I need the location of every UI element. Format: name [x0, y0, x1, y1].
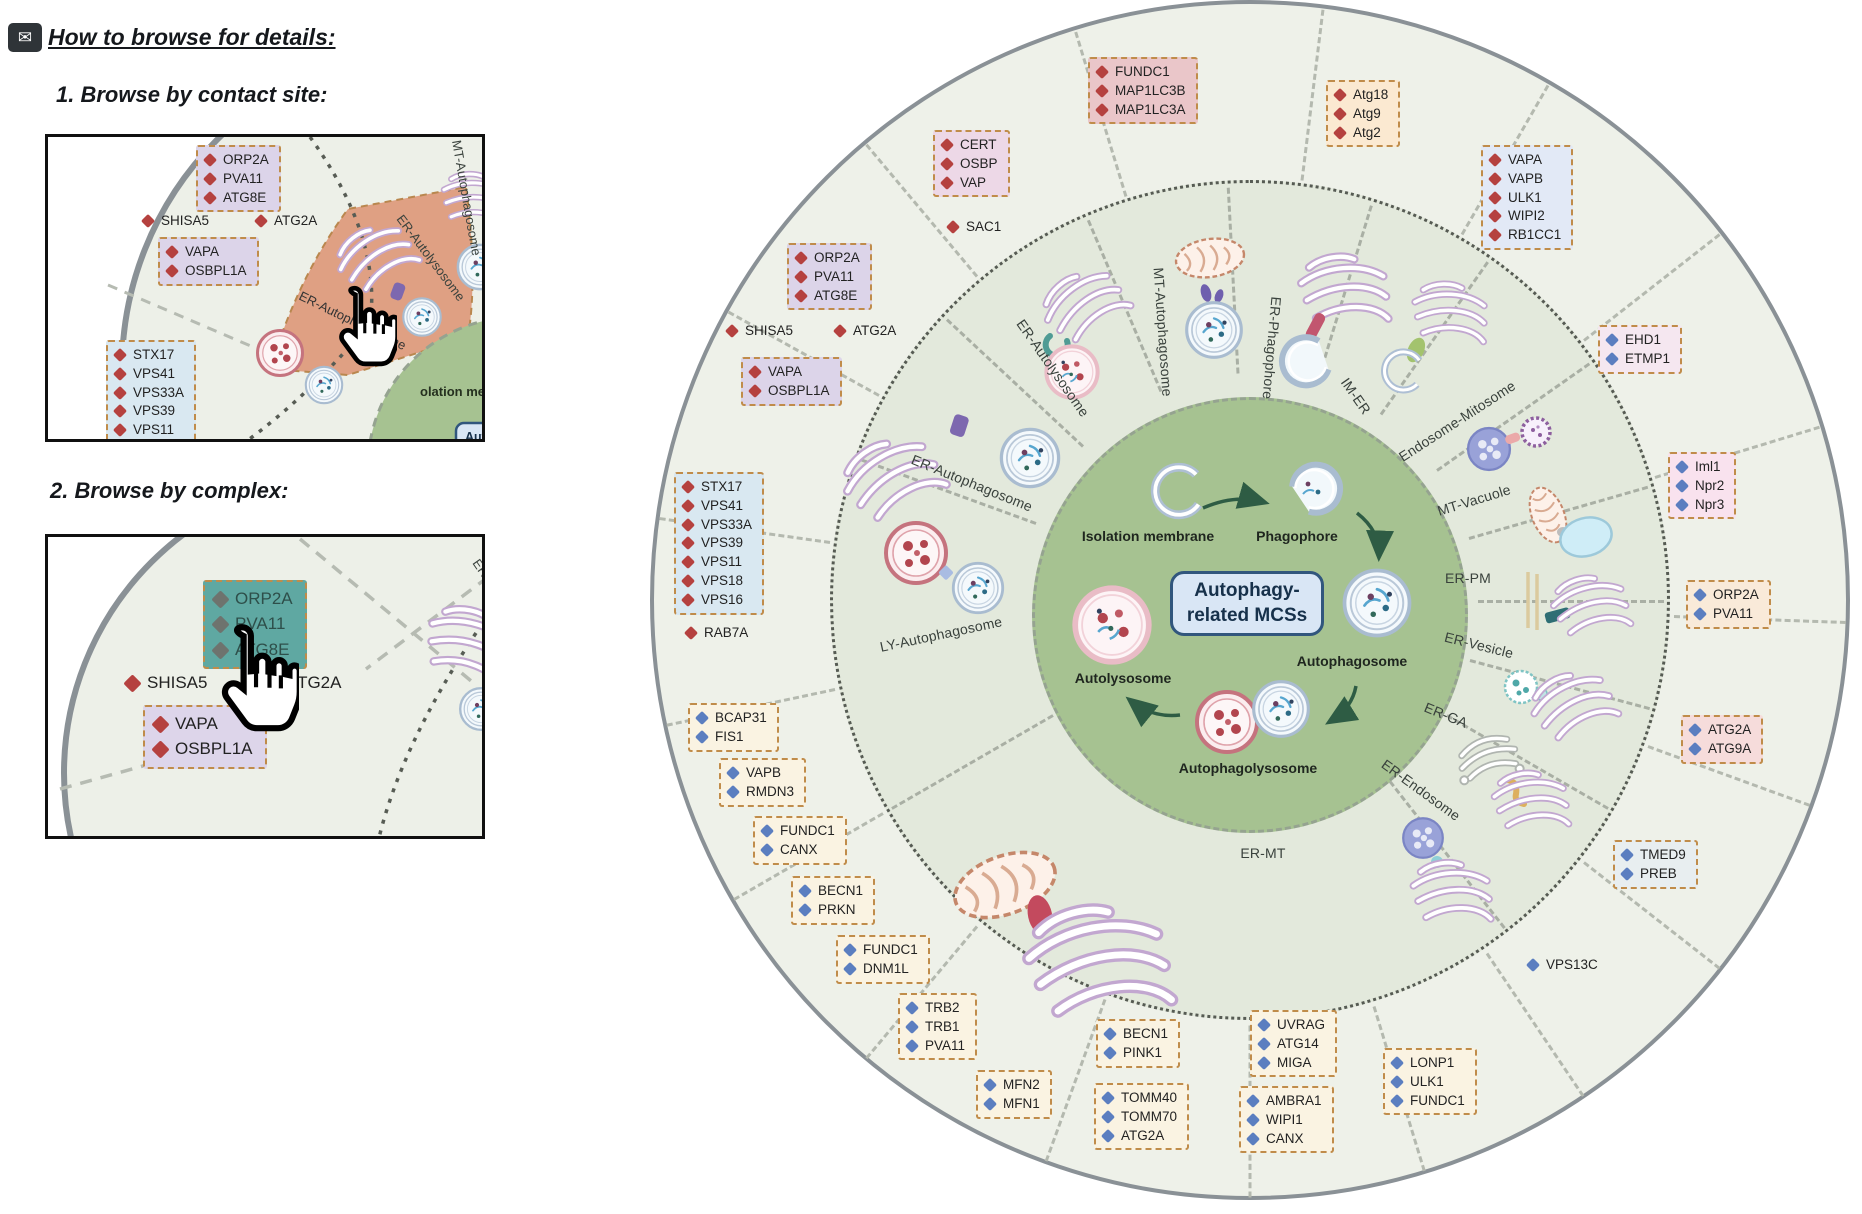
- protein-label: ULK1: [1410, 1073, 1444, 1091]
- protein-label: VPS39: [701, 534, 743, 552]
- diamond-icon: [905, 1038, 919, 1052]
- complex-box-vapb-rmdn3[interactable]: VAPBRMDN3: [719, 758, 806, 807]
- complex-box-fundc1-lc3[interactable]: FUNDC1MAP1LC3BMAP1LC3A: [1088, 57, 1198, 124]
- protein-item[interactable]: CANX: [762, 841, 835, 859]
- protein-item[interactable]: OSBPL1A: [167, 262, 247, 280]
- diamond-icon: [151, 740, 169, 758]
- protein-item[interactable]: ETMP1: [1607, 350, 1670, 368]
- protein-label: ATG9A: [1708, 740, 1751, 758]
- complex-box-becn1-pink1[interactable]: BECN1PINK1: [1096, 1019, 1180, 1068]
- diamond-icon: [1688, 742, 1702, 756]
- complex-box-orp2a[interactable]: ORP2APVA11ATG8E: [196, 145, 281, 212]
- diamond-icon: [211, 590, 229, 608]
- protein-label: MIGA: [1277, 1054, 1312, 1072]
- protein-label: RMDN3: [746, 783, 794, 801]
- protein-item[interactable]: Atg9: [1335, 105, 1388, 123]
- complex-box-mfn[interactable]: MFN2MFN1: [976, 1070, 1052, 1119]
- diamond-icon: [1101, 1091, 1115, 1105]
- protein-label: Atg18: [1353, 86, 1388, 104]
- protein-label: ORP2A: [235, 588, 293, 610]
- protein-label: VPS13C: [1546, 957, 1598, 972]
- protein-item[interactable]: VPS16: [683, 591, 752, 609]
- diamond-icon: [905, 1020, 919, 1034]
- diamond-icon: [760, 824, 774, 838]
- protein-label: VPS33A: [701, 516, 752, 534]
- stage-label-autolysosome: Autolysosome: [1075, 670, 1171, 686]
- complex-box-fundc1-canx[interactable]: FUNDC1CANX: [753, 816, 847, 865]
- protein-item[interactable]: AMBRA1: [1248, 1092, 1322, 1110]
- protein-label: VPS33A: [133, 384, 184, 402]
- protein-item[interactable]: VAPB: [1490, 170, 1561, 188]
- protein-label: LONP1: [1410, 1054, 1454, 1072]
- diamond-icon: [1620, 848, 1634, 862]
- loose-protein-vps13c[interactable]: VPS13C: [1528, 957, 1598, 972]
- protein-item[interactable]: FUNDC1: [1392, 1092, 1465, 1110]
- center-title-badge: Autophagy- related MCSs: [1170, 571, 1324, 636]
- protein-item[interactable]: ULK1: [1392, 1073, 1465, 1091]
- protein-label: VPS16: [701, 591, 743, 609]
- protein-label: WIPI2: [1508, 207, 1545, 225]
- complex-box-atg2a-atg9a[interactable]: ATG2AATG9A: [1681, 715, 1763, 764]
- diamond-icon: [905, 1001, 919, 1015]
- loose-protein-rab7a[interactable]: RAB7A: [686, 625, 748, 640]
- diamond-icon: [1246, 1113, 1260, 1127]
- diamond-icon: [1488, 190, 1502, 204]
- protein-item[interactable]: CERT: [942, 136, 998, 154]
- protein-label: TRB1: [925, 1018, 960, 1036]
- protein-label: TOMM40: [1121, 1089, 1177, 1107]
- loose-protein-atg2a[interactable]: ATG2A: [835, 323, 896, 338]
- protein-label: SHISA5: [745, 323, 793, 338]
- protein-label: FUNDC1: [863, 941, 918, 959]
- protein-label: PREB: [1640, 865, 1677, 883]
- diamond-icon: [1257, 1037, 1271, 1051]
- protein-label: DNM1L: [863, 960, 909, 978]
- protein-item[interactable]: ATG2A: [1690, 721, 1751, 739]
- protein-label: VAPB: [1508, 170, 1543, 188]
- protein-label: VAPA: [185, 243, 219, 261]
- protein-label: Atg9: [1353, 105, 1381, 123]
- diamond-icon: [1390, 1093, 1404, 1107]
- diamond-icon: [940, 138, 954, 152]
- protein-label: ATG8E: [814, 287, 857, 305]
- stage-label-autophagosome: Autophagosome: [1297, 653, 1407, 669]
- protein-item[interactable]: Npr3: [1677, 496, 1724, 514]
- complex-box-vapa[interactable]: VAPAOSBPL1A: [158, 237, 259, 286]
- diamond-icon: [1101, 1128, 1115, 1142]
- protein-label: ATG14: [1277, 1035, 1319, 1053]
- diamond-icon: [760, 843, 774, 857]
- protein-item[interactable]: PVA11: [907, 1037, 965, 1055]
- protein-item[interactable]: MIGA: [1259, 1054, 1325, 1072]
- complex-box-stx17-vps[interactable]: STX17VPS41VPS33AVPS39VPS11VPS18VPS16: [674, 472, 764, 615]
- diamond-icon: [843, 962, 857, 976]
- protein-item[interactable]: ORP2A: [205, 151, 269, 169]
- diamond-icon: [843, 943, 857, 957]
- protein-item[interactable]: OSBP: [942, 155, 998, 173]
- complex-box-becn1-prkn[interactable]: BECN1PRKN: [791, 876, 875, 925]
- loose-protein-atg2a[interactable]: ATG2A: [256, 213, 317, 228]
- protein-item[interactable]: MFN2: [985, 1076, 1040, 1094]
- protein-item[interactable]: VAP: [942, 174, 998, 192]
- diamond-icon: [1605, 333, 1619, 347]
- diamond-icon: [833, 323, 847, 337]
- protein-label: UVRAG: [1277, 1016, 1325, 1034]
- protein-item[interactable]: OSBPL1A: [154, 738, 253, 760]
- diamond-icon: [695, 711, 709, 725]
- protein-item[interactable]: EHD1: [1607, 331, 1670, 349]
- complex-box-tmed9[interactable]: TMED9PREB: [1613, 840, 1698, 889]
- protein-item[interactable]: STX17: [115, 346, 184, 364]
- protein-item[interactable]: FIS1: [697, 728, 767, 746]
- diamond-icon: [1333, 125, 1347, 139]
- protein-item[interactable]: RB1CC1: [1490, 226, 1561, 244]
- protein-label: VPS18: [701, 572, 743, 590]
- protein-label: SHISA5: [161, 213, 209, 228]
- protein-item[interactable]: MAP1LC3B: [1097, 82, 1186, 100]
- protein-label: ULK1: [1508, 189, 1542, 207]
- contact-site-example-panel: ER-Autophagosome ER-Autolysosome MT-Auto…: [45, 134, 485, 442]
- protein-item[interactable]: PRKN: [800, 901, 863, 919]
- protein-item[interactable]: WIPI2: [1490, 207, 1561, 225]
- protein-item[interactable]: FUNDC1: [762, 822, 835, 840]
- complex-box-vapa-osbpl1a[interactable]: VAPAOSBPL1A: [741, 357, 842, 406]
- stage-label-autophagolysosome: Autophagolysosome: [1179, 760, 1317, 776]
- protein-label: VPS41: [701, 497, 743, 515]
- diamond-icon: [1693, 588, 1707, 602]
- protein-label: STX17: [701, 478, 742, 496]
- protein-label: OSBP: [960, 155, 998, 173]
- stage-label-phagophore: Phagophore: [1256, 528, 1338, 544]
- diamond-icon: [940, 175, 954, 189]
- protein-label: Npr3: [1695, 496, 1724, 514]
- protein-label: WIPI1: [1266, 1111, 1303, 1129]
- protein-label: Iml1: [1695, 458, 1721, 476]
- panel1-membrane-fragment: olation membrane: [420, 384, 485, 399]
- protein-label: VPS11: [701, 553, 742, 571]
- protein-item[interactable]: BCAP31: [697, 709, 767, 727]
- protein-label: FUNDC1: [1115, 63, 1170, 81]
- protein-item[interactable]: ATG9A: [1690, 740, 1751, 758]
- diamond-icon: [695, 730, 709, 744]
- protein-label: VPS41: [133, 365, 175, 383]
- diamond-icon: [983, 1078, 997, 1092]
- protein-label: CANX: [1266, 1130, 1304, 1148]
- diamond-icon: [113, 348, 127, 362]
- protein-item[interactable]: VAPA: [750, 363, 830, 381]
- protein-label: Npr2: [1695, 477, 1724, 495]
- protein-label: ORP2A: [223, 151, 269, 169]
- protein-item[interactable]: MAP1LC3A: [1097, 101, 1186, 119]
- complex-example-panel: ER-Autoly ORP2APVA11ATG8E SHISA5 ATG2A V…: [45, 534, 485, 839]
- diamond-icon: [1095, 84, 1109, 98]
- diamond-icon: [1488, 153, 1502, 167]
- diamond-icon: [940, 157, 954, 171]
- diamond-icon: [1246, 1094, 1260, 1108]
- protein-item[interactable]: Atg2: [1335, 124, 1388, 142]
- protein-item[interactable]: VAPA: [167, 243, 247, 261]
- stage-label-isolation-membrane: Isolation membrane: [1082, 528, 1214, 544]
- protein-item[interactable]: VPS39: [115, 402, 184, 420]
- diamond-icon: [726, 766, 740, 780]
- protein-label: ORP2A: [1713, 586, 1759, 604]
- diamond-icon: [203, 153, 217, 167]
- protein-item[interactable]: TMED9: [1622, 846, 1686, 864]
- protein-label: MFN2: [1003, 1076, 1040, 1094]
- protein-item[interactable]: BECN1: [800, 882, 863, 900]
- protein-item[interactable]: PREB: [1622, 865, 1686, 883]
- protein-label: PINK1: [1123, 1044, 1162, 1062]
- protein-label: VAPA: [1508, 151, 1542, 169]
- protein-label: ETMP1: [1625, 350, 1670, 368]
- diamond-icon: [1675, 479, 1689, 493]
- protein-item[interactable]: Iml1: [1677, 458, 1724, 476]
- complex-box-atg18[interactable]: Atg18Atg9Atg2: [1326, 80, 1400, 147]
- protein-item[interactable]: ATG8E: [205, 189, 269, 207]
- protein-label: TMED9: [1640, 846, 1686, 864]
- diamond-icon: [1675, 497, 1689, 511]
- protein-label: OSBPL1A: [768, 382, 830, 400]
- protein-item[interactable]: CANX: [1248, 1130, 1322, 1148]
- protein-label: BECN1: [1123, 1025, 1168, 1043]
- diamond-icon: [1488, 172, 1502, 186]
- diamond-icon: [123, 674, 141, 692]
- protein-item[interactable]: OSBPL1A: [750, 382, 830, 400]
- diamond-icon: [113, 423, 127, 437]
- protein-item[interactable]: UVRAG: [1259, 1016, 1325, 1034]
- diamond-icon: [794, 270, 808, 284]
- protein-label: Atg2: [1353, 124, 1381, 142]
- diamond-icon: [1620, 867, 1634, 881]
- complex-box-lonp1[interactable]: LONP1ULK1FUNDC1: [1383, 1048, 1477, 1115]
- complex-box-cert[interactable]: CERTOSBPVAP: [933, 130, 1010, 197]
- protein-label: VPS39: [133, 402, 175, 420]
- sector-divider: [1478, 600, 1664, 603]
- protein-item[interactable]: VAPA: [1490, 151, 1561, 169]
- diamond-icon: [1257, 1055, 1271, 1069]
- diamond-icon: [1693, 607, 1707, 621]
- diamond-icon: [1101, 1110, 1115, 1124]
- protein-item[interactable]: FUNDC1: [845, 941, 918, 959]
- protein-item[interactable]: LONP1: [1392, 1054, 1465, 1072]
- protein-label: SAC1: [966, 219, 1001, 234]
- protein-label: MFN1: [1003, 1095, 1040, 1113]
- protein-item[interactable]: VPS33A: [115, 384, 184, 402]
- protein-label: BECN1: [818, 882, 863, 900]
- hand-cursor-icon: [331, 283, 397, 371]
- complex-box-tomm[interactable]: TOMM40TOMM70ATG2A: [1094, 1083, 1189, 1150]
- diamond-icon: [1333, 107, 1347, 121]
- protein-label: CERT: [960, 136, 997, 154]
- protein-label: SHISA5: [147, 673, 207, 693]
- protein-item[interactable]: VPS11: [115, 421, 184, 439]
- protein-item[interactable]: Npr2: [1677, 477, 1724, 495]
- complex-box-orp2a-left[interactable]: ORP2APVA11ATG8E: [787, 243, 872, 310]
- protein-label: ATG2A: [1121, 1127, 1164, 1145]
- protein-item[interactable]: PVA11: [796, 268, 860, 286]
- diamond-icon: [203, 190, 217, 204]
- complex-box-vapa-ulk1[interactable]: VAPAVAPBULK1WIPI2RB1CC1: [1481, 145, 1573, 250]
- protein-item[interactable]: ATG2A: [1103, 1127, 1177, 1145]
- diamond-icon: [1095, 102, 1109, 116]
- protein-label: PVA11: [814, 268, 854, 286]
- diamond-icon: [983, 1097, 997, 1111]
- protein-label: EHD1: [1625, 331, 1661, 349]
- diamond-icon: [165, 264, 179, 278]
- diamond-icon: [946, 219, 960, 233]
- protein-item[interactable]: FUNDC1: [1097, 63, 1186, 81]
- protein-label: VAPB: [746, 764, 781, 782]
- diamond-icon: [1390, 1075, 1404, 1089]
- diamond-icon: [1246, 1131, 1260, 1145]
- protein-item[interactable]: PVA11: [1695, 605, 1759, 623]
- protein-item[interactable]: ATG14: [1259, 1035, 1325, 1053]
- diamond-icon: [681, 499, 695, 513]
- protein-label: FUNDC1: [1410, 1092, 1465, 1110]
- complex-box-fundc1-dnm1l[interactable]: FUNDC1DNM1L: [836, 935, 930, 984]
- diamond-icon: [1103, 1027, 1117, 1041]
- protein-item[interactable]: VPS11: [683, 553, 752, 571]
- protein-item[interactable]: TOMM40: [1103, 1089, 1177, 1107]
- protein-label: VAP: [960, 174, 986, 192]
- protein-label: PVA11: [1713, 605, 1753, 623]
- diamond-icon: [1675, 460, 1689, 474]
- protein-label: RAB7A: [704, 625, 748, 640]
- complex-box-trb[interactable]: TRB2TRB1PVA11: [898, 993, 977, 1060]
- diamond-icon: [1333, 88, 1347, 102]
- protein-item[interactable]: DNM1L: [845, 960, 918, 978]
- protein-label: ATG2A: [1708, 721, 1751, 739]
- diamond-icon: [725, 323, 739, 337]
- protein-item[interactable]: WIPI1: [1248, 1111, 1322, 1129]
- diamond-icon: [113, 385, 127, 399]
- diamond-icon: [1526, 957, 1540, 971]
- loose-protein-sac1[interactable]: SAC1: [948, 219, 1001, 234]
- diamond-icon: [748, 365, 762, 379]
- protein-label: TOMM70: [1121, 1108, 1177, 1126]
- diamond-icon: [1103, 1046, 1117, 1060]
- diamond-icon: [254, 213, 268, 227]
- hand-cursor-icon: [211, 621, 299, 737]
- complex-box-ambra1[interactable]: AMBRA1WIPI1CANX: [1239, 1086, 1334, 1153]
- diamond-icon: [748, 384, 762, 398]
- complex-box-stx17[interactable]: STX17VPS41VPS33AVPS39VPS11VPS18: [106, 340, 196, 442]
- diamond-icon: [681, 593, 695, 607]
- step1-heading: 1. Browse by contact site:: [56, 82, 327, 108]
- protein-label: MAP1LC3B: [1115, 82, 1186, 100]
- diamond-icon: [681, 480, 695, 494]
- diamond-icon: [681, 574, 695, 588]
- protein-item[interactable]: VPS39: [683, 534, 752, 552]
- protein-item[interactable]: BECN1: [1105, 1025, 1168, 1043]
- protein-item[interactable]: TRB2: [907, 999, 965, 1017]
- protein-item[interactable]: ATG8E: [796, 287, 860, 305]
- diamond-icon: [681, 517, 695, 531]
- diamond-icon: [798, 884, 812, 898]
- complex-box-orp2a-right[interactable]: ORP2APVA11: [1686, 580, 1771, 629]
- diamond-icon: [165, 245, 179, 259]
- protein-item[interactable]: VAPB: [728, 764, 794, 782]
- figure-root: ✉ How to browse for details: 1. Browse b…: [0, 0, 1862, 1214]
- step2-heading: 2. Browse by complex:: [50, 478, 288, 504]
- diamond-icon: [1257, 1018, 1271, 1032]
- protein-item[interactable]: ORP2A: [1695, 586, 1759, 604]
- diamond-icon: [794, 251, 808, 265]
- protein-label: PVA11: [925, 1037, 965, 1055]
- envelope-icon: ✉: [8, 23, 42, 52]
- protein-item[interactable]: VPS33A: [683, 516, 752, 534]
- protein-label: STX17: [133, 346, 174, 364]
- diamond-icon: [113, 404, 127, 418]
- diamond-icon: [1095, 65, 1109, 79]
- protein-item[interactable]: VPS41: [683, 497, 752, 515]
- complex-box-uvrag[interactable]: UVRAGATG14MIGA: [1250, 1010, 1337, 1077]
- diamond-icon: [726, 785, 740, 799]
- protein-label: AMBRA1: [1266, 1092, 1322, 1110]
- protein-item[interactable]: VPS18: [683, 572, 752, 590]
- protein-item[interactable]: MFN1: [985, 1095, 1040, 1113]
- protein-item[interactable]: ORP2A: [214, 588, 293, 610]
- protein-label: ATG8E: [223, 189, 266, 207]
- sector-label-er-mt[interactable]: ER-MT: [1240, 845, 1285, 861]
- diamond-icon: [1390, 1056, 1404, 1070]
- protein-label: BCAP31: [715, 709, 767, 727]
- loose-protein-shisa5[interactable]: SHISA5: [143, 213, 209, 228]
- protein-label: TRB2: [925, 999, 960, 1017]
- loose-protein-shisa5[interactable]: SHISA5: [727, 323, 793, 338]
- complex-box-bcap31[interactable]: BCAP31FIS1: [688, 703, 779, 752]
- protein-item[interactable]: VPS18: [115, 440, 184, 442]
- protein-label: MAP1LC3A: [1115, 101, 1186, 119]
- protein-item[interactable]: RMDN3: [728, 783, 794, 801]
- sector-label-er-pm[interactable]: ER-PM: [1445, 570, 1491, 586]
- diamond-icon: [684, 625, 698, 639]
- protein-item[interactable]: PINK1: [1105, 1044, 1168, 1062]
- protein-item[interactable]: PVA11: [205, 170, 269, 188]
- loose-protein-shisa5[interactable]: SHISA5: [126, 673, 207, 693]
- protein-item[interactable]: STX17: [683, 478, 752, 496]
- protein-label: PVA11: [223, 170, 263, 188]
- page-title: How to browse for details:: [48, 24, 336, 51]
- protein-label: VPS11: [133, 421, 174, 439]
- panel1-badge-fragment: Aut: [465, 430, 485, 442]
- badge-line2: related MCSs: [1177, 604, 1317, 629]
- protein-item[interactable]: Atg18: [1335, 86, 1388, 104]
- diamond-icon: [151, 715, 169, 733]
- complex-box-iml1[interactable]: Iml1Npr2Npr3: [1668, 452, 1736, 519]
- protein-label: FIS1: [715, 728, 744, 746]
- protein-label: VAPA: [768, 363, 802, 381]
- protein-label: ATG2A: [853, 323, 896, 338]
- protein-item[interactable]: ORP2A: [796, 249, 860, 267]
- protein-item[interactable]: ULK1: [1490, 189, 1561, 207]
- protein-item[interactable]: TOMM70: [1103, 1108, 1177, 1126]
- diamond-icon: [1488, 228, 1502, 242]
- diamond-icon: [1605, 352, 1619, 366]
- protein-label: PRKN: [818, 901, 856, 919]
- protein-label: VPS18: [133, 440, 175, 442]
- protein-label: OSBPL1A: [175, 738, 253, 760]
- diamond-icon: [1688, 723, 1702, 737]
- complex-box-ehd1[interactable]: EHD1ETMP1: [1598, 325, 1682, 374]
- diamond-icon: [1488, 209, 1502, 223]
- protein-item[interactable]: VPS41: [115, 365, 184, 383]
- protein-label: ORP2A: [814, 249, 860, 267]
- diamond-icon: [141, 213, 155, 227]
- protein-item[interactable]: TRB1: [907, 1018, 965, 1036]
- diamond-icon: [203, 172, 217, 186]
- diamond-icon: [681, 555, 695, 569]
